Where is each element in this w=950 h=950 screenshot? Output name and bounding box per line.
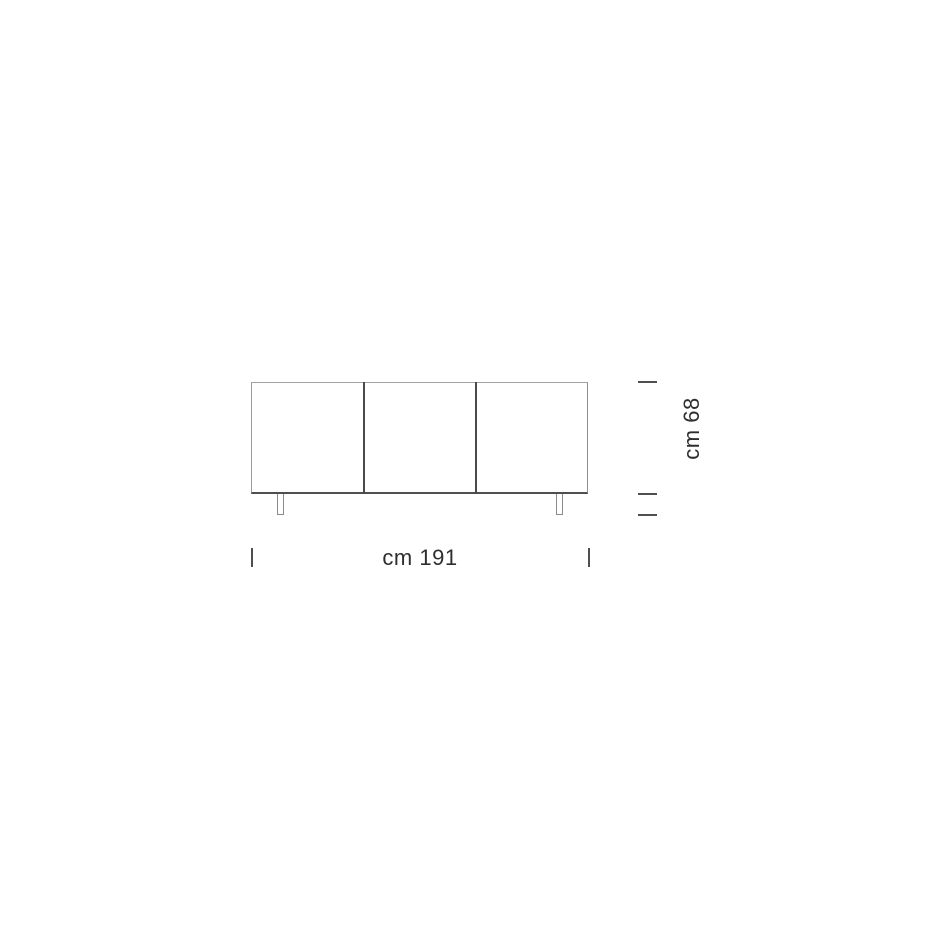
height-tick-top [638,381,657,383]
width-dimension-label: cm 191 [340,545,500,570]
cabinet-leg-right [556,494,563,515]
door-divider-left [363,382,365,494]
width-tick-right [588,548,590,567]
height-tick-bottom [638,514,657,516]
cabinet-outline [251,382,588,494]
height-dimension-label: cm 68 [679,368,704,489]
furniture-dimension-diagram: cm 68 cm 191 [0,0,950,950]
cabinet-leg-left [277,494,284,515]
door-divider-right [475,382,477,494]
width-tick-left [251,548,253,567]
height-tick-middle [638,493,657,495]
